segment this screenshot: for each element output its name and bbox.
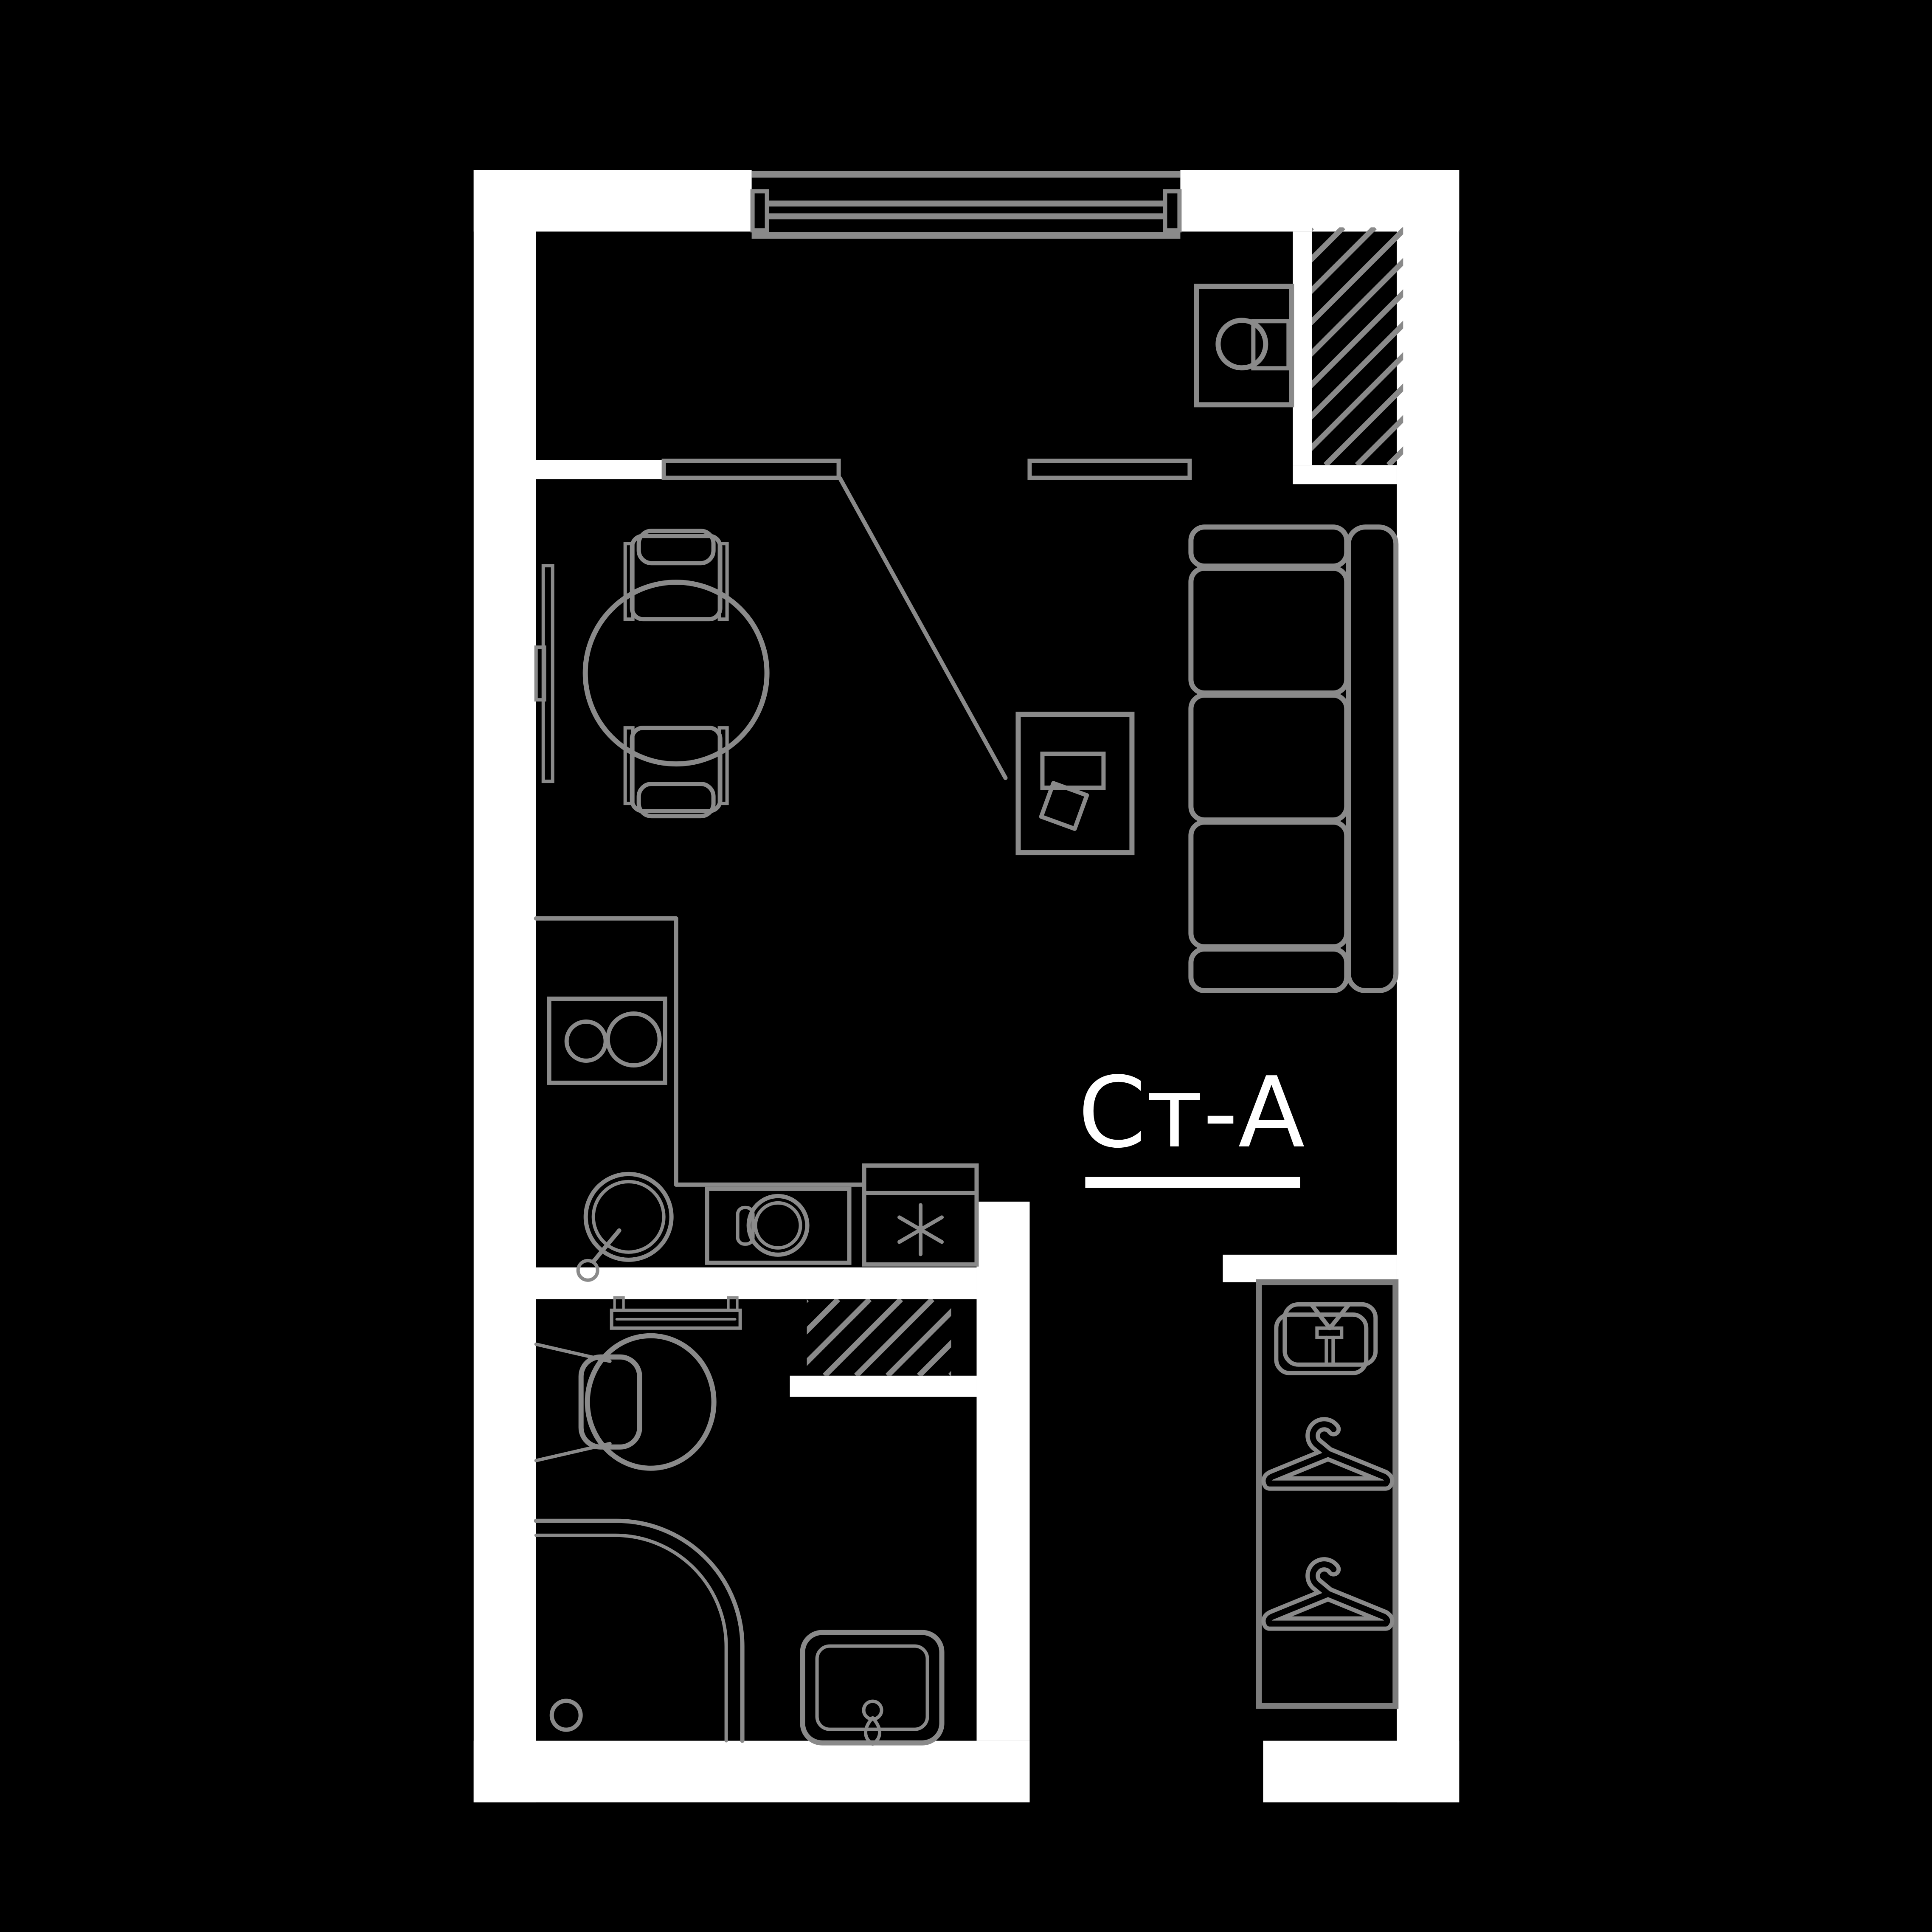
- wall-bottom-right: [1263, 1741, 1459, 1802]
- floorplan-stage: Ст-А: [0, 0, 1932, 1932]
- window-pane-line-1: [765, 200, 1167, 206]
- wall-bottom-left: [473, 1741, 1029, 1802]
- wall-bath-shaft-stub: [790, 1376, 976, 1397]
- window-frame-outer-bottom: [751, 232, 1180, 239]
- wall-corridor-left: [976, 1202, 1029, 1741]
- wall-wardrobe-top: [1223, 1255, 1397, 1282]
- floorplan-svg: Ст-А: [0, 0, 1932, 1932]
- wall-right: [1397, 170, 1459, 1802]
- unit-label-underline: [1085, 1177, 1300, 1188]
- wall-hall-partition: [536, 460, 664, 479]
- wall-below-top-shaft: [1293, 465, 1397, 484]
- unit-label: Ст-А: [1078, 1056, 1305, 1170]
- wall-hall-right-vertical: [1293, 231, 1312, 465]
- window-frame-outer-top: [751, 171, 1180, 177]
- wall-kitchen-bathroom: [536, 1267, 976, 1299]
- wall-left: [473, 170, 536, 1802]
- background: [0, 0, 1932, 1932]
- window-pane-line-2: [765, 213, 1167, 219]
